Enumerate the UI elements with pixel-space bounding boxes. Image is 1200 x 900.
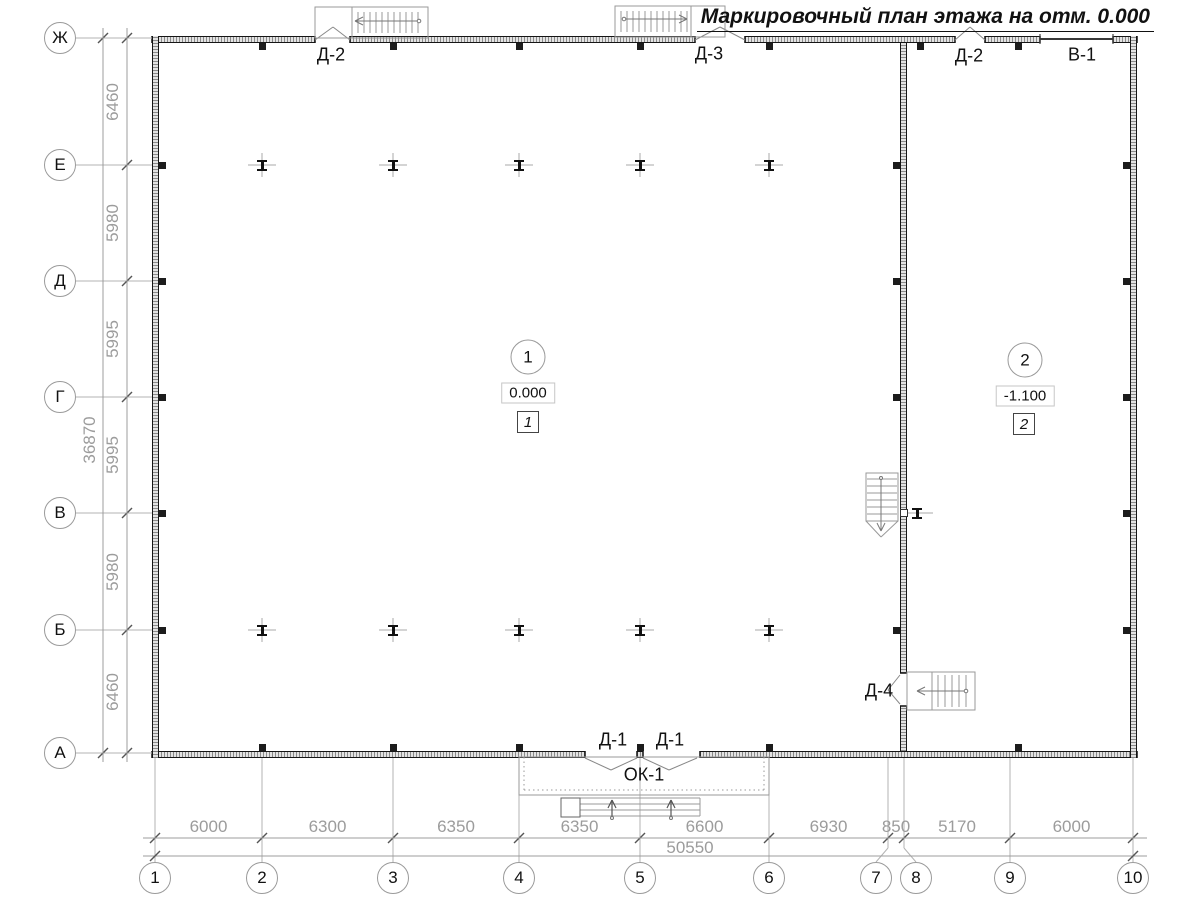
- dim-bottom-total: 50550: [666, 838, 713, 858]
- dim-bottom-4: 6600: [686, 817, 724, 837]
- col-axis-circle-4: 5: [624, 862, 656, 894]
- line: [679, 15, 687, 19]
- line: [917, 687, 925, 691]
- dim-bottom-5: 6930: [810, 817, 848, 837]
- room-number-circle-2: 2: [1008, 343, 1043, 378]
- wall-column-marker: [637, 744, 644, 751]
- wall-column-marker: [1123, 510, 1130, 517]
- rect: [315, 7, 428, 38]
- dim-bottom-8: 6000: [1053, 817, 1091, 837]
- dim-left-5: 6460: [103, 673, 123, 711]
- door-label-d1-right: Д-1: [656, 730, 684, 751]
- column-marker: [388, 160, 398, 171]
- wall-column-marker: [259, 744, 266, 751]
- room-tag-2: 2: [1013, 413, 1035, 435]
- wall-column-marker: [893, 162, 900, 169]
- wall-column-marker: [917, 43, 924, 50]
- room-number-2: 2: [1020, 350, 1029, 370]
- column-marker: [635, 625, 645, 636]
- column-marker: [764, 160, 774, 171]
- line: [355, 17, 363, 21]
- line: [669, 758, 697, 770]
- wall-column-marker: [893, 627, 900, 634]
- wall-column-marker: [766, 744, 773, 751]
- wall-column-marker: [1123, 627, 1130, 634]
- dim-left-3: 5995: [103, 436, 123, 474]
- line: [917, 691, 925, 695]
- row-axis-circle-6: А: [44, 737, 76, 769]
- line: [585, 758, 611, 770]
- dim-left-0: 6460: [103, 83, 123, 121]
- col-axis-circle-0: 1: [139, 862, 171, 894]
- room-elevation-2: -1.100: [996, 386, 1055, 407]
- column-marker: [514, 160, 524, 171]
- column-marker: [912, 508, 922, 519]
- row-axis-circle-2: Д: [44, 265, 76, 297]
- row-axis-circle-5: Б: [44, 614, 76, 646]
- column-marker: [257, 160, 267, 171]
- row-axis-circle-1: Е: [44, 149, 76, 181]
- wall-column-marker: [1123, 162, 1130, 169]
- col-axis-circle-2: 3: [377, 862, 409, 894]
- dim-left-total: 36870: [80, 416, 100, 463]
- wall-column-marker: [766, 43, 773, 50]
- col-axis-circle-1: 2: [246, 862, 278, 894]
- door-label-d2-right: Д-2: [955, 46, 983, 67]
- line: [881, 521, 898, 537]
- door-label-d4: Д-4: [865, 681, 893, 702]
- column-marker: [257, 625, 267, 636]
- rect: [561, 798, 580, 817]
- wall-column-marker: [159, 394, 166, 401]
- dot: [880, 477, 883, 480]
- wall-column-marker: [1123, 278, 1130, 285]
- line: [679, 19, 687, 23]
- room-tag-1: 1: [517, 411, 539, 433]
- dim-bottom-1: 6300: [309, 817, 347, 837]
- row-axis-circle-4: В: [44, 497, 76, 529]
- wall-column-marker: [1123, 394, 1130, 401]
- door-label-d3: Д-3: [695, 44, 723, 65]
- column-marker: [764, 625, 774, 636]
- line: [876, 848, 888, 862]
- wall-column-marker: [259, 43, 266, 50]
- wall-column-marker: [1015, 43, 1022, 50]
- wall-column-marker: [893, 278, 900, 285]
- gate-label-v1: В-1: [1068, 45, 1096, 66]
- wall-column-marker: [159, 162, 166, 169]
- dot: [670, 817, 673, 820]
- col-axis-circle-8: 9: [994, 862, 1026, 894]
- line: [904, 848, 916, 862]
- room-elevation-1: 0.000: [501, 383, 555, 404]
- dot: [611, 817, 614, 820]
- dim-left-1: 5980: [103, 204, 123, 242]
- wall-column-marker: [637, 43, 644, 50]
- wall-column-marker: [390, 43, 397, 50]
- wall-column-marker: [159, 278, 166, 285]
- line: [877, 523, 881, 531]
- dot: [417, 19, 421, 23]
- line: [866, 521, 881, 537]
- row-axis-circle-0: Ж: [44, 22, 76, 54]
- col-axis-circle-3: 4: [503, 862, 535, 894]
- room-number-circle-1: 1: [511, 340, 546, 375]
- door-label-d1-left: Д-1: [599, 730, 627, 751]
- dim-bottom-0: 6000: [190, 817, 228, 837]
- wall-column-marker: [516, 744, 523, 751]
- drawing-linework: [0, 0, 1200, 900]
- line: [881, 523, 885, 531]
- dot: [622, 17, 626, 21]
- wall-column-marker: [159, 627, 166, 634]
- row-axis-circle-3: Г: [44, 381, 76, 413]
- wall-column-marker: [516, 43, 523, 50]
- column-marker: [514, 625, 524, 636]
- room-number-1: 1: [523, 347, 532, 367]
- dot: [964, 689, 968, 693]
- wall-column-marker: [390, 744, 397, 751]
- wall-column-marker: [1015, 744, 1022, 751]
- dim-left-4: 5980: [103, 553, 123, 591]
- door-label-d2-left: Д-2: [317, 45, 345, 66]
- wall-column-marker: [900, 509, 908, 517]
- dim-bottom-7: 5170: [938, 817, 976, 837]
- dim-bottom-3: 6350: [561, 817, 599, 837]
- wall-column-marker: [159, 510, 166, 517]
- col-axis-circle-6: 7: [860, 862, 892, 894]
- line: [355, 21, 363, 25]
- window-label-ok1: ОК-1: [624, 765, 665, 786]
- dim-left-2: 5995: [103, 320, 123, 358]
- col-axis-circle-9: 10: [1117, 862, 1149, 894]
- col-axis-circle-5: 6: [753, 862, 785, 894]
- column-marker: [388, 625, 398, 636]
- col-axis-circle-7: 8: [900, 862, 932, 894]
- wall-column-marker: [893, 394, 900, 401]
- dim-bottom-2: 6350: [437, 817, 475, 837]
- column-marker: [635, 160, 645, 171]
- drawing-title: Маркировочный план этажа на отм. 0.000: [697, 5, 1154, 32]
- floor-plan-drawing: Маркировочный план этажа на отм. 0.000 Д…: [0, 0, 1200, 900]
- dim-bottom-6: 850: [882, 817, 910, 837]
